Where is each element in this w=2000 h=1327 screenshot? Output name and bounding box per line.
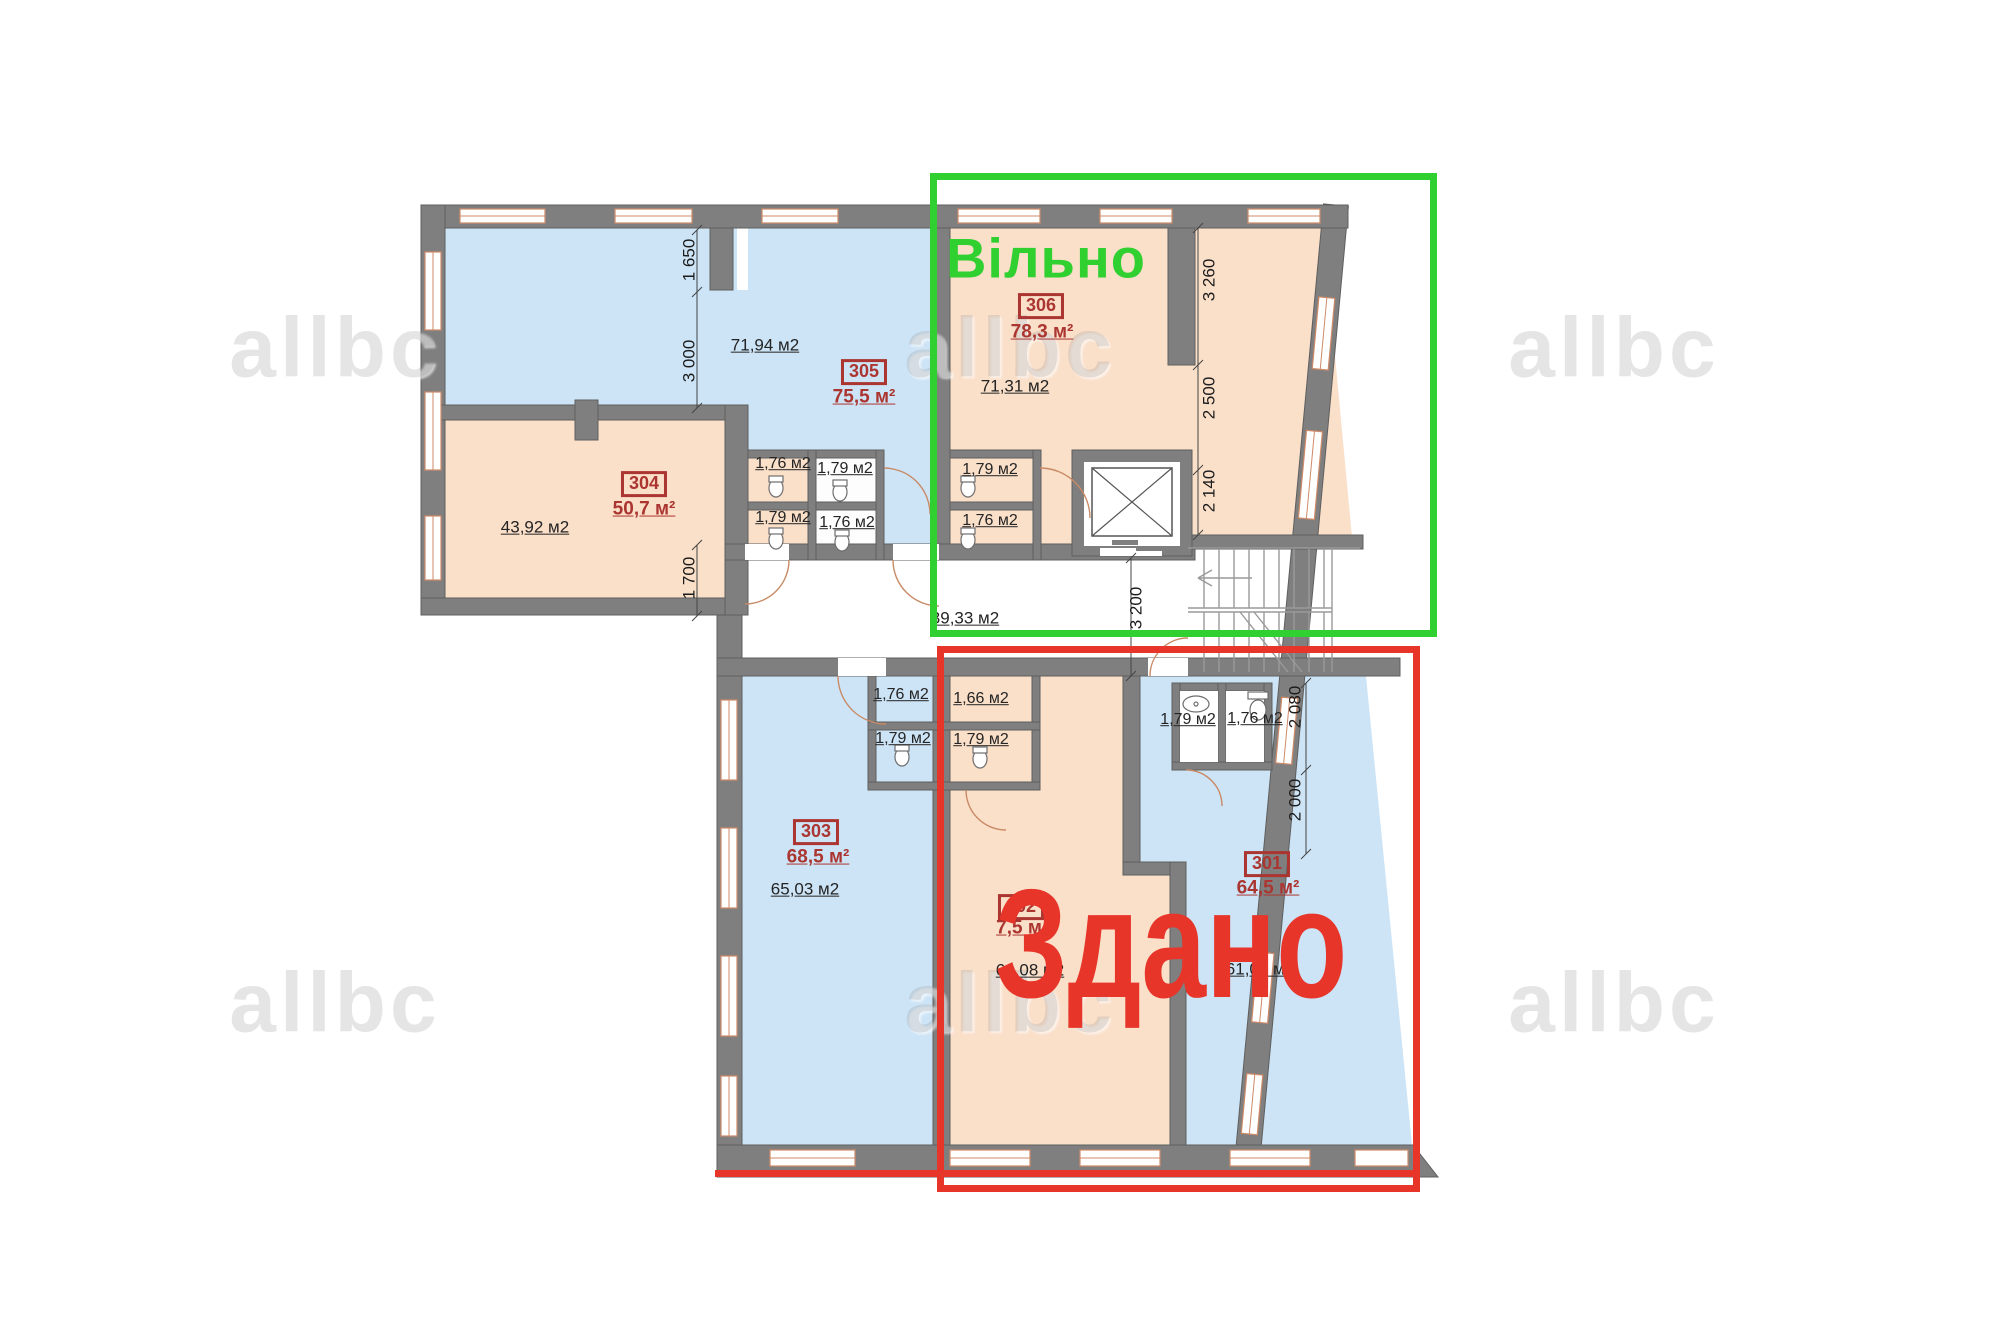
dim-1700: 1 700 bbox=[681, 557, 700, 600]
small-room-label: 1,79 м2 bbox=[755, 509, 810, 527]
rented-area-bottom-line bbox=[715, 1170, 1420, 1177]
room-304-area: 43,92 м2 bbox=[501, 519, 569, 538]
free-area-label: Вільно bbox=[946, 226, 1146, 291]
watermark: allbc bbox=[1508, 955, 1719, 1052]
small-room-label: 1,76 м2 bbox=[755, 455, 810, 473]
room-304-number: 304 bbox=[621, 471, 667, 497]
dim-1650: 1 650 bbox=[681, 239, 700, 282]
watermark: allbc bbox=[229, 300, 440, 397]
small-room-label: 1,76 м2 bbox=[819, 514, 874, 532]
small-room-label: 1,79 м2 bbox=[817, 460, 872, 478]
floor-plan-canvas: allbc allbc allbc allbc allbc allbc 1 65… bbox=[0, 0, 2000, 1327]
dim-3000: 3 000 bbox=[681, 340, 700, 383]
watermark: allbc bbox=[1508, 300, 1719, 397]
room-303-number: 303 bbox=[793, 819, 839, 845]
rented-area-label: Здано bbox=[995, 855, 1348, 1033]
room-304-total-area: 50,7 м² bbox=[613, 500, 676, 521]
small-room-label: 1,76 м2 bbox=[873, 686, 928, 704]
room-305-area: 71,94 м2 bbox=[731, 337, 799, 356]
room-303-area: 65,03 м2 bbox=[771, 881, 839, 900]
room-303-total-area: 68,5 м² bbox=[787, 848, 850, 869]
small-room-label: 1,79 м2 bbox=[875, 730, 930, 748]
room-305-total-area: 75,5 м² bbox=[833, 388, 896, 409]
room-305-number: 305 bbox=[841, 359, 887, 385]
watermark: allbc bbox=[229, 955, 440, 1052]
